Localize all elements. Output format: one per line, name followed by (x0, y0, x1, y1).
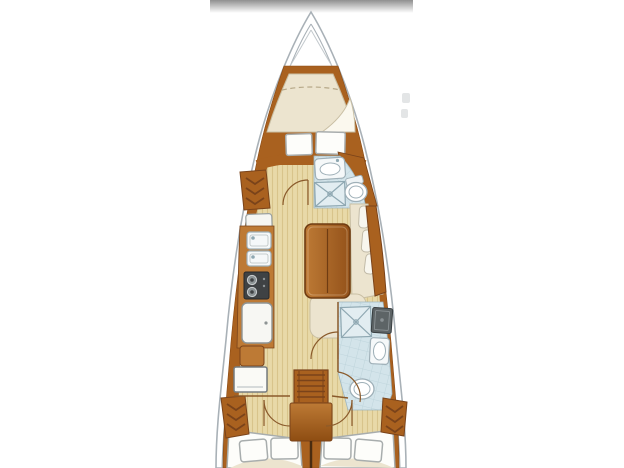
seat-locker-right (316, 132, 346, 155)
engine-box (290, 403, 332, 441)
galley (237, 214, 274, 348)
dining-table (305, 224, 350, 298)
faucet-icon (251, 236, 255, 240)
hanging-locker-aft-starboard (381, 398, 407, 436)
aft-head (338, 302, 393, 410)
handle-icon (264, 321, 267, 324)
pillow (354, 439, 383, 462)
two-burner-stove (244, 272, 269, 299)
vanity-counter (371, 307, 393, 333)
chart-table (234, 367, 267, 392)
boat-layout-screenshot (0, 0, 624, 468)
ladder-steps (294, 370, 328, 403)
forward-head-sink (314, 157, 345, 180)
galley-double-sink (247, 232, 271, 266)
pillow (239, 439, 268, 462)
refrigerator (242, 303, 272, 343)
shower-grate-forward (315, 181, 346, 206)
hull-fitting-marks (401, 93, 410, 118)
hanging-locker-aft-port (221, 396, 249, 438)
hanging-locker-forward (240, 170, 270, 210)
nav-seat (240, 346, 264, 366)
toilet-aft (350, 379, 374, 399)
faucet-icon (251, 255, 255, 259)
shower-grate-aft (340, 306, 371, 337)
seat-locker-left (286, 134, 313, 156)
aft-head-sink (369, 338, 389, 365)
boat-floor-plan (0, 0, 624, 468)
